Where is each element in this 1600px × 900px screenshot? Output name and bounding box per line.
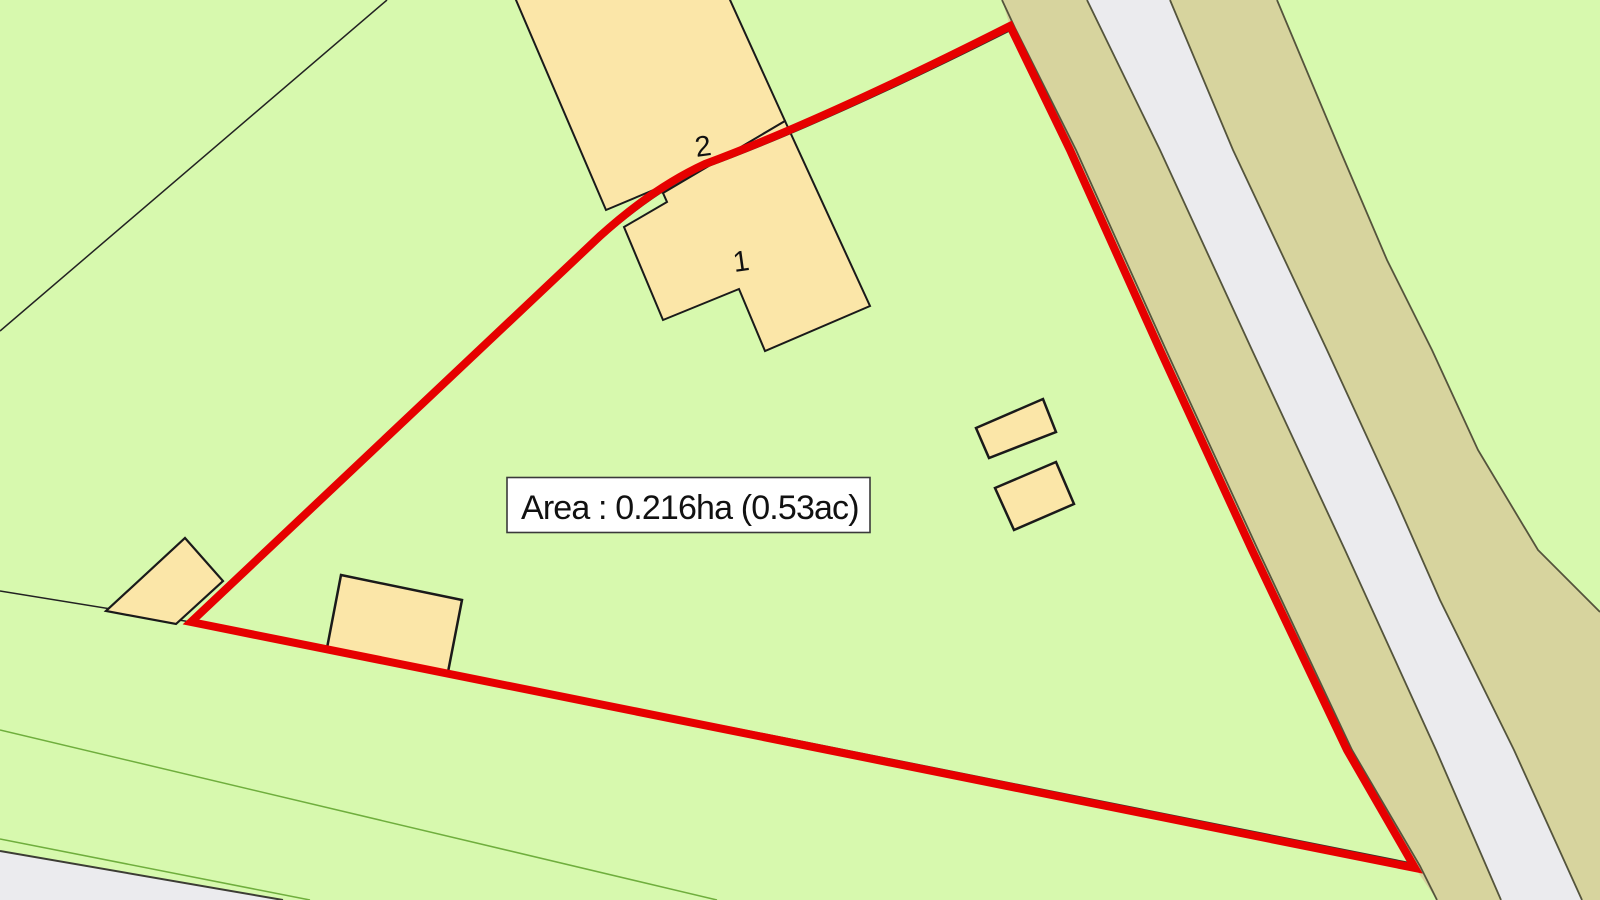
svg-text:Area : 0.216ha (0.53ac): Area : 0.216ha (0.53ac) [521, 489, 859, 527]
